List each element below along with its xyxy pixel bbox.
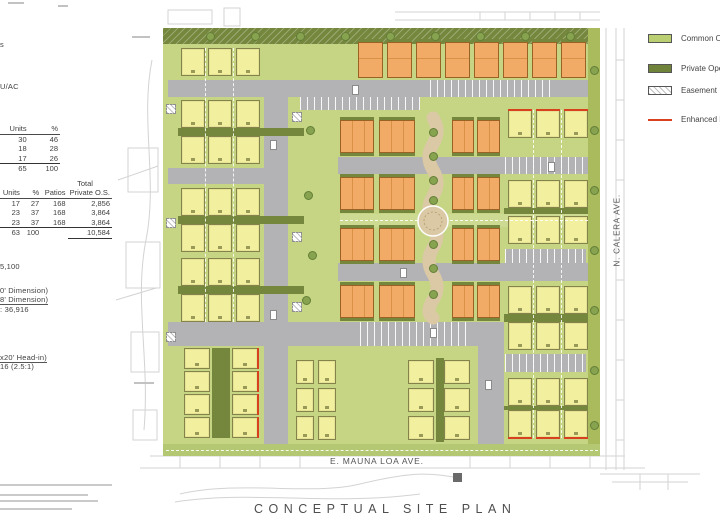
yellow-house — [318, 388, 336, 412]
table-cell: % — [22, 188, 41, 198]
yellow-house — [536, 378, 560, 406]
yellow-house — [208, 136, 232, 164]
table-cell: 23 — [0, 208, 22, 218]
yellow-house — [536, 410, 560, 438]
fine-print-note — [0, 508, 72, 510]
table-cell: Private O.S. — [68, 188, 112, 198]
orange-townhome-row — [477, 285, 500, 318]
road — [338, 263, 588, 281]
orange-townhome-row — [387, 42, 412, 78]
yellow-house — [236, 224, 260, 252]
yellow-house — [536, 322, 560, 350]
street-label-mauna-loa: E. MAUNA LOA AVE. — [330, 456, 424, 466]
tree-symbol — [302, 296, 311, 305]
yellow-house — [184, 417, 210, 438]
private-open-space — [178, 216, 304, 224]
legend-item-easement: Easement — [648, 85, 720, 97]
orange-townhome-row — [379, 177, 415, 210]
private-open-space-swatch — [648, 64, 672, 73]
walkway-dashed — [205, 48, 206, 322]
orange-townhome-row — [503, 42, 528, 78]
yellow-house — [184, 371, 210, 392]
table-cell: Units — [0, 188, 22, 198]
table-cell: 18 — [0, 144, 29, 154]
orange-townhome-row — [477, 120, 500, 153]
road-label-chip — [485, 380, 492, 390]
text-fragment: 0' Dimension) — [0, 286, 48, 295]
orange-townhome-row — [445, 42, 470, 78]
table-cell: Patios — [41, 188, 67, 198]
open-space-table-super-header: Total — [62, 179, 108, 188]
yellow-house — [181, 258, 205, 286]
east-landscape-strip — [588, 28, 600, 456]
table-cell: 168 — [41, 218, 67, 228]
easement-hatch — [166, 218, 176, 228]
enhanced-elevation-mark — [257, 394, 259, 415]
yellow-house — [508, 322, 532, 350]
yellow-house — [508, 286, 532, 314]
road-label-chip — [400, 268, 407, 278]
orange-townhome-row — [416, 42, 441, 78]
walkway-dashed — [340, 220, 588, 221]
yellow-house — [236, 258, 260, 286]
tree-symbol — [429, 128, 438, 137]
yellow-house — [408, 360, 434, 384]
yellow-house — [184, 394, 210, 415]
private-open-space — [178, 128, 304, 136]
easement-hatch — [166, 332, 176, 342]
yellow-house — [296, 360, 314, 384]
table-cell: 100 — [22, 228, 41, 239]
table-cell: Units — [0, 124, 29, 134]
enhanced-elevation-mark — [257, 371, 259, 392]
road-label-chip — [548, 162, 555, 172]
yellow-house — [236, 294, 260, 322]
orange-townhome-row — [379, 120, 415, 153]
walkway-dashed — [533, 110, 534, 438]
enhanced-elevation-mark — [536, 109, 560, 111]
yellow-house — [536, 180, 560, 208]
easement-hatch — [292, 112, 302, 122]
text-fragment: s — [0, 40, 4, 49]
yellow-house — [208, 224, 232, 252]
site-data-panel: Units%30461828172665100 Total Units%Pati… — [0, 0, 150, 520]
open-space-table: Units%PatiosPrivate O.S.17271682,8562337… — [0, 188, 112, 239]
enhanced-elevation-mark — [257, 348, 259, 369]
tree-symbol — [296, 32, 305, 41]
street-label-calera: N. CALERA AVE. — [613, 177, 622, 267]
yellow-house — [444, 416, 470, 440]
tree-symbol — [304, 191, 313, 200]
parking-stalls — [360, 322, 470, 346]
yellow-house — [208, 48, 232, 76]
orange-townhome-row — [452, 228, 474, 261]
yellow-house — [181, 224, 205, 252]
parking-stalls — [505, 249, 586, 263]
tree-symbol — [590, 306, 599, 315]
table-cell: 2,856 — [68, 198, 112, 208]
yellow-house — [508, 110, 532, 138]
yellow-house — [564, 410, 588, 438]
tree-symbol — [590, 186, 599, 195]
yellow-house — [208, 100, 232, 128]
yellow-house — [564, 286, 588, 314]
orange-townhome-row — [561, 42, 586, 78]
road-label-chip — [430, 328, 437, 338]
enhanced-elevation-mark — [564, 109, 588, 111]
table-cell: 63 — [0, 228, 22, 239]
walkway-dashed — [561, 110, 562, 438]
yellow-house — [181, 294, 205, 322]
table-cell: 30 — [0, 134, 29, 144]
road-label-chip — [270, 140, 277, 150]
site-plan-sheet: Units%30461828172665100 Total Units%Pati… — [0, 0, 720, 520]
yellow-house — [536, 286, 560, 314]
yellow-house — [232, 348, 258, 369]
road-label-chip — [270, 310, 277, 320]
tree-symbol — [429, 290, 438, 299]
parking-stalls — [430, 80, 550, 97]
orange-townhome-row — [340, 285, 374, 318]
yellow-house — [181, 136, 205, 164]
table-cell: 28 — [29, 144, 60, 154]
yellow-house — [236, 100, 260, 128]
yellow-house — [181, 188, 205, 216]
walkway-dashed — [166, 450, 598, 451]
unit-mix-table: Units%30461828172665100 — [0, 124, 60, 174]
fine-print-note — [0, 484, 112, 486]
tree-symbol — [429, 152, 438, 161]
yellow-house — [564, 378, 588, 406]
enhanced-elevation-mark — [564, 437, 588, 439]
orange-townhome-row — [474, 42, 499, 78]
legend-label: Private Open Space — [681, 64, 720, 73]
parking-stalls — [300, 97, 420, 110]
yellow-house — [208, 294, 232, 322]
yellow-house — [408, 416, 434, 440]
tree-symbol — [251, 32, 260, 41]
private-open-space — [212, 348, 230, 438]
legend-label: Easement — [681, 86, 717, 95]
table-cell: 168 — [41, 198, 67, 208]
yellow-house — [296, 388, 314, 412]
tree-symbol — [429, 176, 438, 185]
table-cell: 46 — [29, 134, 60, 144]
fine-print-note — [0, 494, 88, 496]
yellow-house — [444, 360, 470, 384]
table-cell: 17 — [0, 154, 29, 164]
table-cell: 37 — [22, 218, 41, 228]
orange-townhome-row — [452, 177, 474, 210]
table-cell: 26 — [29, 154, 60, 164]
yellow-house — [508, 410, 532, 438]
legend-label: Common Open Space — [681, 34, 720, 43]
tree-symbol — [590, 246, 599, 255]
yellow-house — [444, 388, 470, 412]
orange-townhome-row — [379, 285, 415, 318]
tree-symbol — [386, 32, 395, 41]
enhanced-elevations-swatch — [648, 119, 672, 121]
yellow-house — [236, 188, 260, 216]
orange-townhome-row — [340, 177, 374, 210]
yellow-house — [181, 100, 205, 128]
orange-townhome-row — [477, 228, 500, 261]
fine-print-note — [0, 500, 98, 502]
yellow-house — [232, 371, 258, 392]
tree-symbol — [590, 421, 599, 430]
legend-label: Enhanced Elevations — [681, 115, 720, 124]
orange-townhome-row — [452, 285, 474, 318]
road-label-chip — [352, 85, 359, 95]
yellow-house — [181, 48, 205, 76]
tree-symbol — [590, 366, 599, 375]
road — [168, 168, 268, 184]
table-cell: 65 — [0, 164, 29, 174]
private-open-space — [178, 286, 304, 294]
enhanced-elevation-mark — [508, 109, 532, 111]
easement-hatch — [166, 104, 176, 114]
orange-townhome-row — [340, 228, 374, 261]
tree-symbol — [206, 32, 215, 41]
yellow-house — [536, 110, 560, 138]
orange-townhome-row — [477, 177, 500, 210]
text-fragment: 16 (2.5:1) — [0, 362, 34, 371]
yellow-house — [296, 416, 314, 440]
easement-hatch — [292, 232, 302, 242]
table-cell — [41, 228, 67, 239]
table-cell: 3,864 — [68, 208, 112, 218]
yellow-house — [208, 188, 232, 216]
parking-stalls — [505, 157, 585, 174]
legend-item-common-open-space: Common Open Space — [648, 33, 720, 45]
legend-item-private-open-space: Private Open Space — [648, 63, 720, 75]
text-fragment: U/AC — [0, 82, 19, 91]
yellow-house — [208, 258, 232, 286]
parking-stalls — [505, 354, 586, 372]
enhanced-elevation-mark — [257, 417, 259, 438]
walkway-dashed — [233, 48, 234, 322]
legend-item-enhanced-elevations: Enhanced Elevations — [648, 114, 720, 126]
conceptual-site-plan-drawing — [163, 28, 600, 456]
yellow-house — [232, 394, 258, 415]
tree-symbol — [590, 126, 599, 135]
table-cell: 17 — [0, 198, 22, 208]
tree-symbol — [429, 240, 438, 249]
table-cell: 37 — [22, 208, 41, 218]
tree-symbol — [429, 196, 438, 205]
tree-symbol — [429, 264, 438, 273]
tree-symbol — [566, 32, 575, 41]
tree-symbol — [341, 32, 350, 41]
enhanced-elevation-mark — [536, 437, 560, 439]
easement-hatch — [292, 302, 302, 312]
text-fragment: 8' Dimension) — [0, 295, 48, 305]
yellow-house — [232, 417, 258, 438]
yellow-house — [184, 348, 210, 369]
yellow-house — [508, 180, 532, 208]
tree-symbol — [308, 251, 317, 260]
yellow-house — [508, 378, 532, 406]
orange-townhome-row — [452, 120, 474, 153]
private-open-space — [504, 314, 588, 322]
tree-symbol — [306, 126, 315, 135]
orange-townhome-row — [532, 42, 557, 78]
context-marker — [453, 473, 462, 482]
table-cell: 10,584 — [68, 228, 112, 239]
orange-townhome-row — [358, 42, 383, 78]
sheet-title: CONCEPTUAL SITE PLAN — [254, 502, 516, 516]
easement-swatch — [648, 86, 672, 95]
yellow-house — [564, 180, 588, 208]
yellow-house — [408, 388, 434, 412]
tree-symbol — [590, 66, 599, 75]
table-cell: 23 — [0, 218, 22, 228]
table-cell: % — [29, 124, 60, 134]
private-open-space — [436, 358, 444, 442]
text-fragment: : 36,916 — [0, 305, 29, 314]
orange-townhome-row — [340, 120, 374, 153]
yellow-house — [564, 110, 588, 138]
common-open-space-swatch — [648, 34, 672, 43]
table-cell: 27 — [22, 198, 41, 208]
yellow-house — [318, 360, 336, 384]
enhanced-elevation-mark — [508, 437, 532, 439]
text-fragment: 5,100 — [0, 262, 20, 271]
tree-symbol — [431, 32, 440, 41]
table-cell: 3,864 — [68, 218, 112, 228]
yellow-house — [236, 136, 260, 164]
tree-symbol — [521, 32, 530, 41]
yellow-house — [564, 322, 588, 350]
yellow-house — [318, 416, 336, 440]
table-cell: 168 — [41, 208, 67, 218]
yellow-house — [236, 48, 260, 76]
tree-symbol — [476, 32, 485, 41]
table-cell: 100 — [29, 164, 60, 174]
orange-townhome-row — [379, 228, 415, 261]
